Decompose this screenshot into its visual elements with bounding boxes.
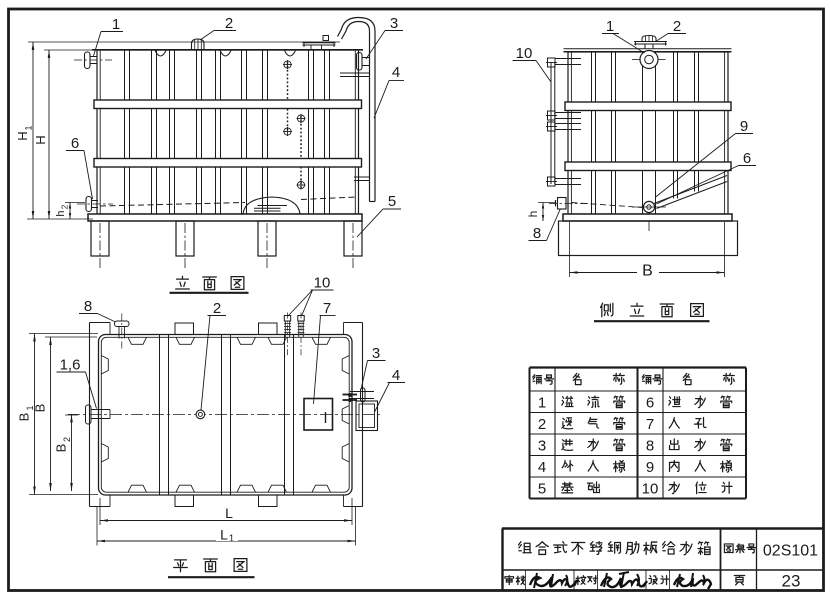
svg-text:2: 2 xyxy=(213,300,221,317)
svg-text:10: 10 xyxy=(314,275,331,292)
svg-text:L: L xyxy=(220,527,228,543)
svg-text:B: B xyxy=(54,444,69,453)
svg-text:2: 2 xyxy=(62,437,72,442)
svg-text:1: 1 xyxy=(229,534,235,545)
svg-text:6: 6 xyxy=(743,150,751,167)
svg-text:1: 1 xyxy=(24,125,34,130)
svg-text:2: 2 xyxy=(538,416,546,433)
svg-text:H: H xyxy=(15,131,30,140)
svg-text:3: 3 xyxy=(538,437,546,454)
svg-text:1: 1 xyxy=(112,16,120,33)
svg-text:4: 4 xyxy=(392,367,400,384)
svg-text:1: 1 xyxy=(606,18,614,35)
svg-text:02S101: 02S101 xyxy=(763,543,818,560)
svg-text:8: 8 xyxy=(533,225,541,242)
svg-text:10: 10 xyxy=(516,45,533,62)
svg-text:7: 7 xyxy=(646,416,654,433)
svg-text:3: 3 xyxy=(390,15,398,32)
svg-text:8: 8 xyxy=(84,298,92,315)
svg-text:8: 8 xyxy=(646,437,654,454)
svg-text:6: 6 xyxy=(71,135,79,152)
svg-text:h: h xyxy=(55,210,67,216)
svg-text:H: H xyxy=(33,135,48,144)
svg-text:7: 7 xyxy=(323,300,331,317)
svg-text:2: 2 xyxy=(225,15,233,32)
svg-text:5: 5 xyxy=(388,193,396,210)
svg-text:1,6: 1,6 xyxy=(60,357,81,374)
svg-text:9: 9 xyxy=(740,118,748,135)
svg-text:6: 6 xyxy=(646,394,654,411)
svg-text:2: 2 xyxy=(673,18,681,35)
svg-text:23: 23 xyxy=(782,572,801,591)
svg-text:B: B xyxy=(17,413,32,422)
svg-text:1: 1 xyxy=(538,394,546,411)
svg-text:L: L xyxy=(225,505,233,521)
svg-text:2: 2 xyxy=(61,204,70,209)
svg-text:4: 4 xyxy=(538,459,546,476)
svg-text:h: h xyxy=(526,211,540,218)
svg-text:10: 10 xyxy=(642,480,659,497)
svg-text:3: 3 xyxy=(372,345,380,362)
svg-text:B: B xyxy=(642,263,653,280)
svg-text:4: 4 xyxy=(392,64,400,81)
svg-text:9: 9 xyxy=(646,459,654,476)
svg-text:B: B xyxy=(33,404,48,413)
svg-text:5: 5 xyxy=(538,480,546,497)
